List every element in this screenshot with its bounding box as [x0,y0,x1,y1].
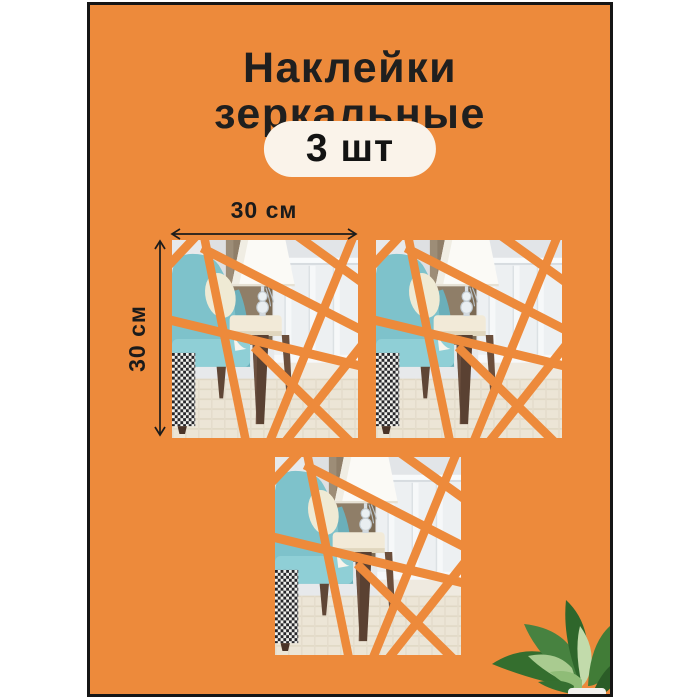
plant-pot [568,688,606,696]
quantity-badge-text: 3 шт [306,127,394,170]
title-line-1: Наклейки [90,45,610,91]
width-arrow-icon [169,227,359,241]
mirror-sticker-artwork [275,457,461,655]
mirror-sticker-tile-1 [172,240,358,438]
page: Наклейки зеркальные 3 шт 30 см 30 см [0,0,700,700]
height-dimension-label: 30 см [117,238,157,438]
mirror-sticker-artwork [172,240,358,438]
mirror-sticker-artwork [376,240,562,438]
width-dimension-label: 30 см [171,197,357,224]
quantity-badge: 3 шт [264,121,436,177]
plant-leaves [492,600,612,694]
height-arrow-icon [153,238,167,438]
product-card: Наклейки зеркальные 3 шт 30 см 30 см [87,2,613,697]
plant-icon [480,568,612,696]
mirror-sticker-tile-3 [275,457,461,655]
mirror-sticker-tile-2 [376,240,562,438]
